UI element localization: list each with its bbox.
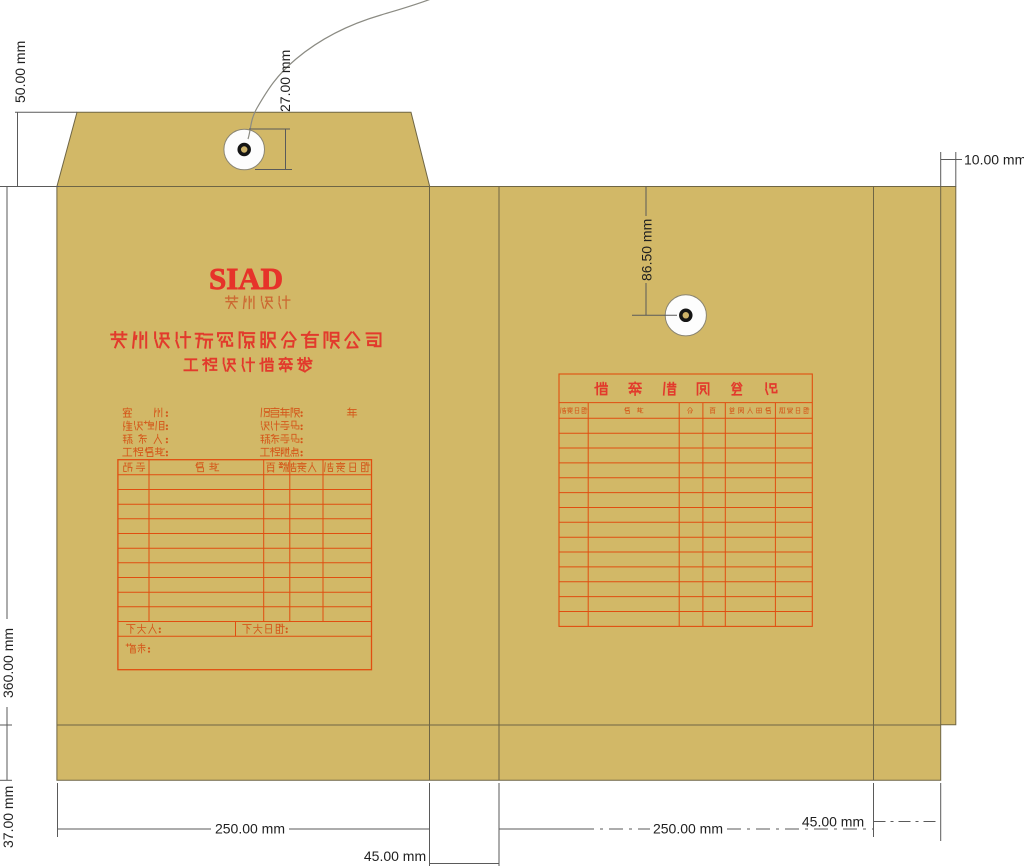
svg-text:45.00 mm: 45.00 mm	[364, 848, 426, 864]
svg-text:37.00 mm: 37.00 mm	[0, 786, 16, 848]
svg-text:SIAD: SIAD	[209, 261, 283, 296]
svg-text:86.50 mm: 86.50 mm	[639, 219, 655, 281]
svg-text:27.00 mm: 27.00 mm	[277, 50, 293, 112]
svg-text:250.00 mm: 250.00 mm	[653, 821, 723, 837]
svg-text:50.00 mm: 50.00 mm	[12, 41, 28, 103]
svg-text:360.00 mm: 360.00 mm	[0, 628, 16, 698]
svg-text:45.00 mm: 45.00 mm	[802, 814, 864, 830]
svg-text:250.00 mm: 250.00 mm	[215, 821, 285, 837]
svg-text:10.00 mm: 10.00 mm	[964, 152, 1024, 168]
